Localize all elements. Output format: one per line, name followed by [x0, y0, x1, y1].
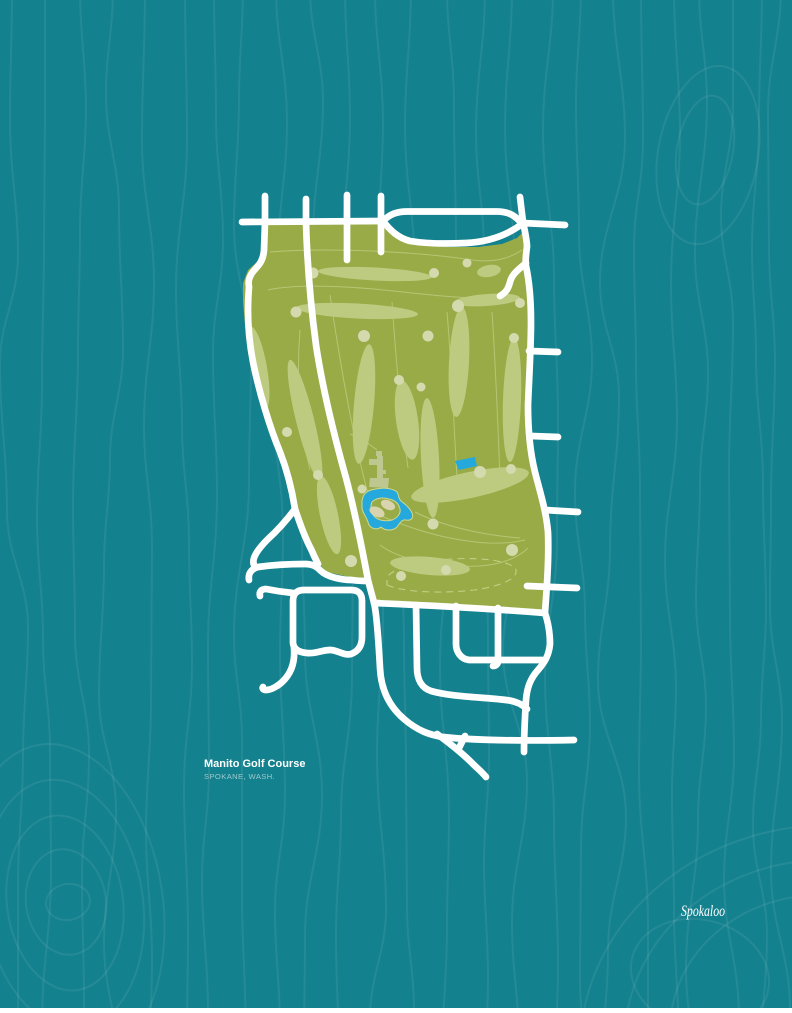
svg-text:SPOKANE, WASH.: SPOKANE, WASH.	[204, 772, 275, 781]
svg-text:Manito Golf Course: Manito Golf Course	[204, 758, 305, 770]
svg-text:Spokaloo: Spokaloo	[681, 902, 725, 920]
